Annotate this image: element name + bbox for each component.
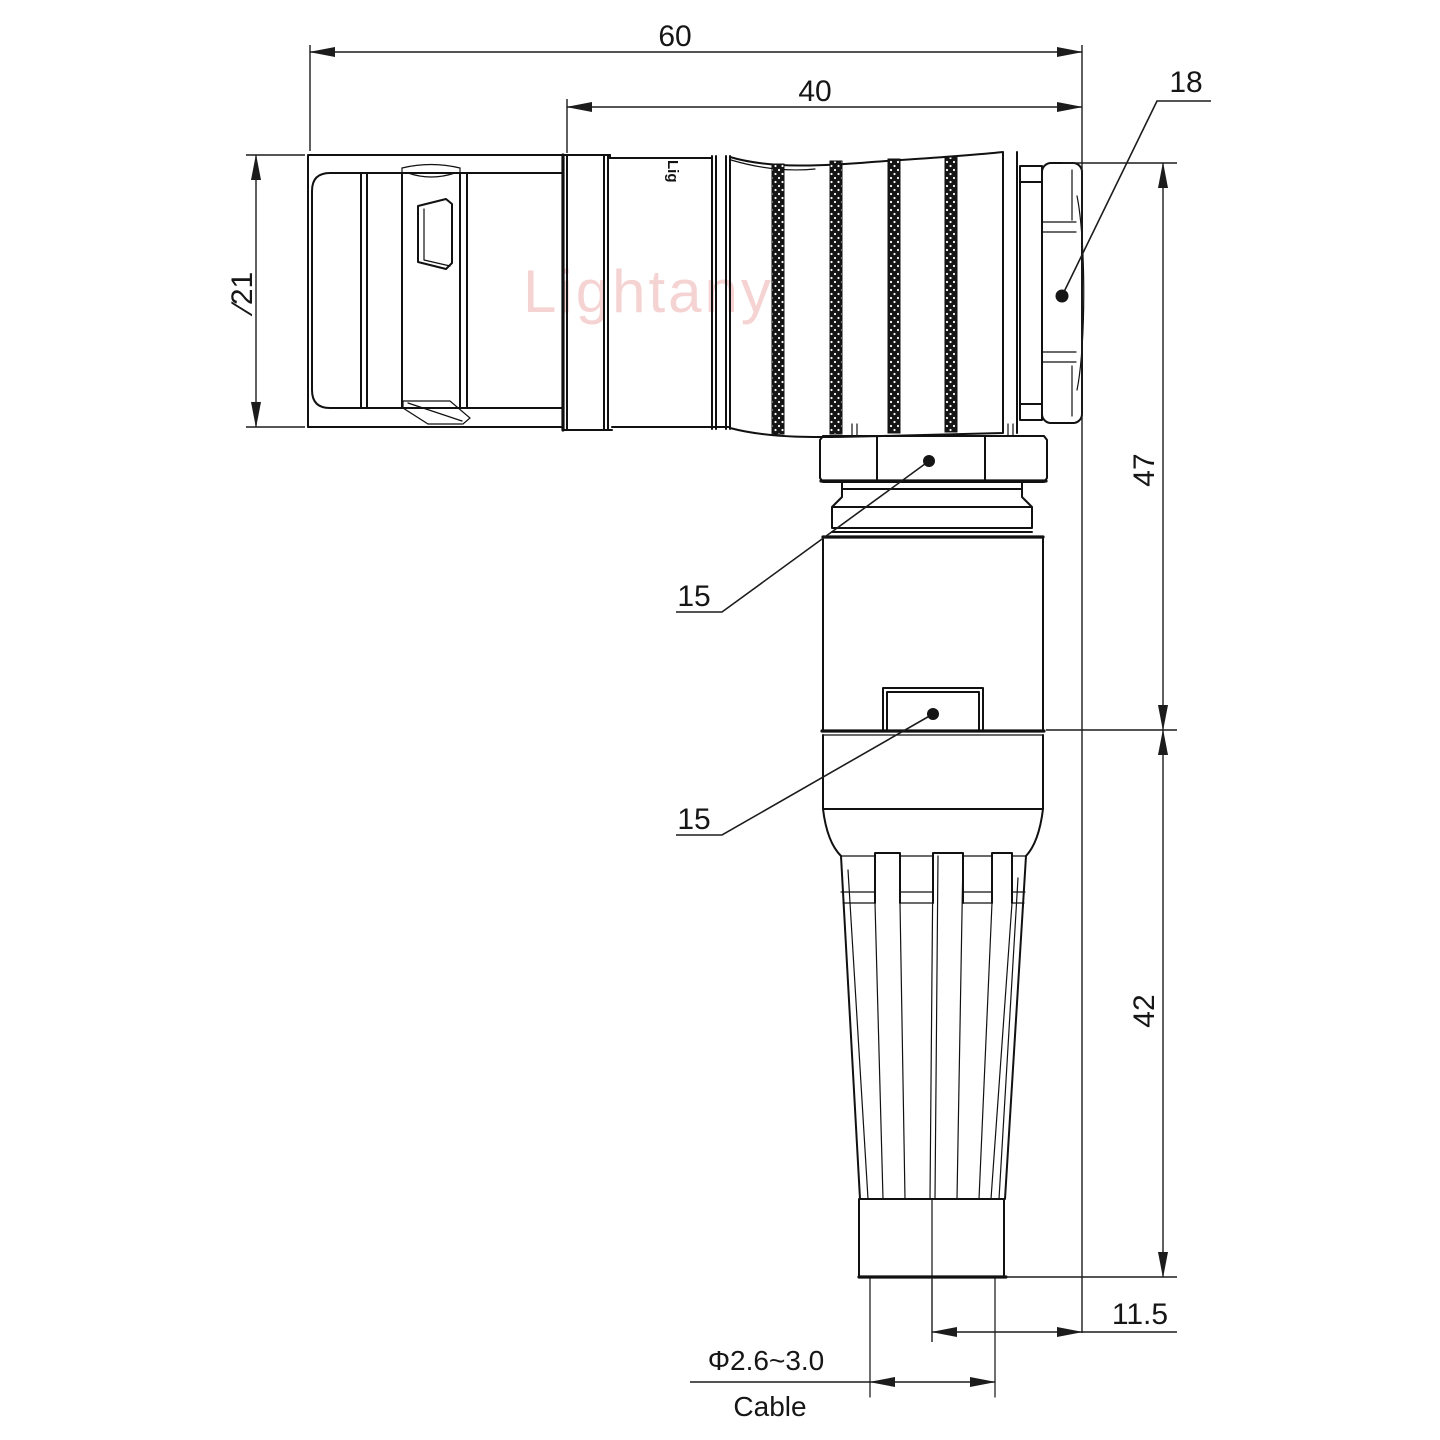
dim-label-42: 42 <box>1128 994 1161 1027</box>
canvas-background <box>0 0 1440 1440</box>
dim-label-d21: ∕21 <box>226 272 259 317</box>
dim-label-15b: 15 <box>677 803 710 836</box>
leader-dot <box>923 455 935 467</box>
technical-drawing: Lightany Lig <box>0 0 1440 1440</box>
watermark: Lightany <box>523 258 774 325</box>
dim-label-115: 11.5 <box>1112 1298 1168 1331</box>
leader-dot <box>927 708 939 720</box>
drawing-page: Lightany Lig <box>0 0 1440 1440</box>
dim-label-40: 40 <box>798 75 831 108</box>
knurl-strip <box>772 164 784 434</box>
part-marking: Lig <box>664 160 681 183</box>
dim-label-cable-diameter: Φ2.6~3.0 <box>708 1345 825 1376</box>
dim-label-47: 47 <box>1128 453 1161 486</box>
dim-label-15a: 15 <box>677 580 710 613</box>
knurl-strip <box>945 157 957 432</box>
knurl-strip <box>830 161 842 434</box>
dim-label-cable-caption: Cable <box>733 1391 806 1422</box>
dim-label-60: 60 <box>658 20 691 53</box>
leader-dot <box>1056 290 1069 303</box>
dim-label-18: 18 <box>1169 66 1202 99</box>
knurl-strip <box>888 159 900 433</box>
